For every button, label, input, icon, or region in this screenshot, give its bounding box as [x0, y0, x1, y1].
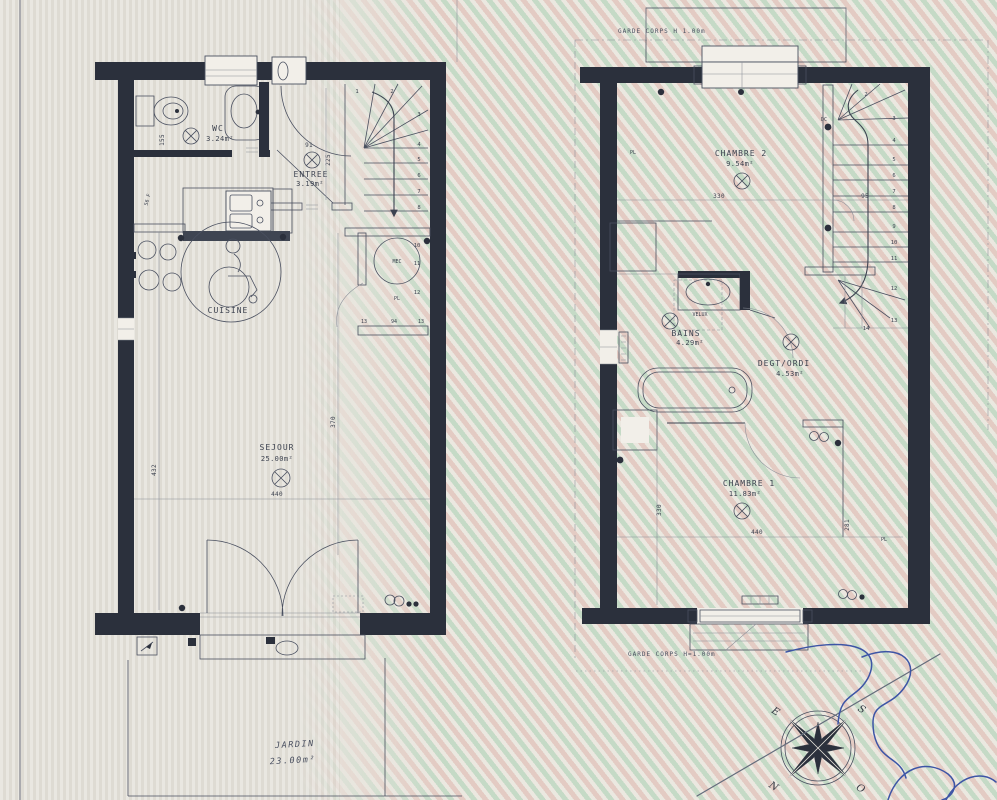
dim-330v: 330	[656, 504, 663, 516]
entree-area: 3.19m²	[296, 180, 324, 188]
dim-155: 155	[159, 134, 166, 146]
chambre1-door-arc	[745, 423, 800, 478]
wc-partition-right	[262, 150, 270, 157]
bathtub	[638, 368, 752, 412]
chambre2-room: PL CHAMBRE 2 9.54m² DC 330 95	[610, 117, 908, 271]
wall-bottom-right	[360, 613, 446, 635]
window-left-wall	[118, 318, 134, 340]
toilet	[136, 96, 188, 126]
chambre1-room: CHAMBRE 1 11.83m² 440 PL 330 281	[617, 420, 903, 605]
french-doors	[200, 540, 363, 617]
mec-wall-hatch	[358, 233, 366, 285]
garde-corps-top-label: GARDE CORPS H 1.00m	[618, 28, 706, 35]
wc-duct-wall	[259, 82, 269, 157]
step-num: 2	[864, 92, 867, 98]
sejour-area: 25.00m²	[261, 455, 293, 463]
step-num: 5	[417, 157, 420, 163]
socket-symbols-chambre1	[839, 590, 865, 600]
washbasin-bath	[678, 274, 740, 310]
step-num: 4	[892, 138, 896, 144]
entry-door-arc	[281, 86, 351, 156]
chambre2-area: 9.54m²	[726, 160, 754, 168]
dc-label: DC	[821, 117, 827, 123]
ceiling-light-wc	[183, 128, 199, 144]
ceiling-light-bains	[662, 313, 678, 329]
compass-rose: E S N O	[766, 703, 867, 795]
step-num: 1	[355, 89, 358, 95]
step-num: 13	[891, 318, 898, 324]
ground-floor-plan: WC 3.24m² 155 ENTREE 3.19m² 91 225	[95, 56, 446, 767]
chambre1-area: 11.83m²	[729, 490, 761, 498]
mec-zone: MEC PL 10 11 12 13 94 13	[337, 233, 428, 335]
entree-label: ENTREE	[294, 170, 329, 179]
wc-door-ticks	[246, 148, 258, 152]
window-top-1	[205, 56, 257, 85]
dim-13a: 13	[361, 319, 367, 325]
step-num: 9	[892, 224, 895, 230]
balcony-slab	[690, 624, 808, 650]
entree-door-ticks	[306, 205, 318, 209]
dim-281: 281	[844, 519, 851, 531]
wall-bottom-left-upper	[582, 608, 697, 624]
fixed-panel-dashed	[333, 596, 363, 612]
bains-label: BAINS	[671, 329, 700, 338]
step-num: 8	[417, 205, 420, 211]
dimension-lines-ground	[134, 88, 430, 610]
kitchen: CUISINE 56 F	[126, 188, 292, 322]
dim-330: 330	[713, 193, 725, 200]
blue-pen-curve-2	[862, 652, 911, 778]
step-num: 12	[414, 290, 421, 296]
step-num: 11	[891, 256, 898, 262]
wall-left-upper	[118, 62, 134, 318]
wall-top	[95, 62, 446, 80]
pl-left-label: PL	[630, 150, 636, 156]
dim-432: 432	[151, 464, 158, 476]
dim-440-upper: 440	[751, 529, 763, 536]
step-num: 8	[892, 205, 895, 211]
step-num: 10	[414, 243, 421, 249]
compass-s: S	[856, 703, 868, 716]
dim-440-ground: 440	[271, 491, 283, 498]
dim-370: 370	[330, 416, 337, 428]
wall-bottom-right-upper	[803, 608, 930, 624]
dressing-hatch	[613, 410, 657, 450]
pl-label-ground: PL	[394, 296, 400, 302]
step-num: 3	[892, 116, 895, 122]
floorplan-drawing: WC 3.24m² 155 ENTREE 3.19m² 91 225	[0, 0, 997, 800]
terrace-slab	[200, 635, 365, 659]
appliance-circles	[126, 241, 181, 291]
wall-right-upper-plan	[908, 67, 930, 624]
velux-label: VELUX	[692, 312, 707, 318]
socket-symbols-upper	[810, 432, 829, 442]
dim-13b: 13	[418, 319, 424, 325]
step-num: 6	[417, 173, 420, 179]
sejour-label: SEJOUR	[260, 443, 295, 452]
ceiling-light-chambre2	[734, 173, 750, 189]
degt-label: DEGT/ORDI	[758, 359, 810, 368]
socket-symbols-sejour	[385, 595, 419, 607]
dim-94: 94	[391, 319, 397, 325]
pl-door-arc	[337, 283, 363, 327]
pl-right-label: PL	[881, 537, 887, 543]
chambre1-label: CHAMBRE 1	[723, 479, 775, 488]
dim-91: 91	[305, 142, 313, 149]
pl-wall-hatch	[358, 326, 428, 335]
wall-right	[430, 62, 446, 635]
sejour-room: SEJOUR 25.00m² 440 432 370	[134, 88, 430, 610]
wc-area: 3.24m²	[206, 135, 234, 143]
compass-o: O	[854, 782, 867, 796]
step-num: 2	[390, 89, 393, 95]
compass-e: E	[768, 705, 781, 719]
window-top-2	[272, 57, 306, 84]
entree-hall: ENTREE 3.19m² 91 225	[269, 86, 352, 210]
kitchen-wall	[134, 224, 185, 232]
garde-corps-bottom-label: GARDE CORPS H=1.00m	[628, 651, 716, 658]
stair-top-arc	[833, 200, 854, 221]
upper-floor-plan: GARDE CORPS H 1.00m	[580, 8, 930, 658]
radiator	[619, 332, 628, 363]
bathroom-wall-top	[678, 271, 750, 278]
wc-label: WC	[212, 124, 224, 133]
stair-landing-hatch	[805, 267, 875, 275]
step-num: 3	[417, 112, 420, 118]
wall-bottom-left	[95, 613, 200, 635]
scanned-floorplan-page: WC 3.24m² 155 ENTREE 3.19m² 91 225	[0, 0, 997, 800]
window-left-upper	[600, 330, 628, 364]
stair-ground: 1 2 3 4 5 6 7 8	[345, 84, 430, 236]
kitchen-cabinet	[273, 189, 292, 233]
step-num: 6	[892, 173, 895, 179]
step-num: 4	[417, 142, 421, 148]
ceiling-light-entree	[304, 152, 320, 168]
mec-label: MEC	[392, 259, 401, 265]
stair-railing	[823, 85, 833, 272]
velux-dashed-outline	[674, 280, 722, 330]
wall-left-lower	[118, 340, 134, 615]
step-num: 7	[892, 189, 895, 195]
garden-boundary-lines	[128, 658, 462, 796]
wc-room: WC 3.24m² 155	[134, 82, 270, 157]
blue-pen-flourish-1	[888, 766, 954, 800]
compass-n: N	[766, 779, 781, 794]
entree-wall-hatch-right	[332, 203, 352, 210]
bathroom-duct	[740, 271, 750, 310]
ceiling-light-degt	[783, 334, 799, 350]
degt-area: 4.53m²	[776, 370, 804, 378]
doorbell-mark	[276, 641, 298, 655]
wc-partition-left	[134, 150, 232, 157]
balcony-window-top	[694, 46, 806, 88]
stair-walkline-arrow	[372, 92, 394, 216]
jardin-label: JARDIN	[274, 739, 315, 751]
bains-area: 4.29m²	[676, 339, 704, 347]
outdoor-tap-symbol	[137, 637, 157, 655]
step-num: 14	[863, 326, 870, 332]
step-num: 12	[891, 286, 898, 292]
step-num: 7	[417, 189, 420, 195]
step-num: 5	[892, 157, 895, 163]
ceiling-light-sejour	[272, 469, 290, 487]
annotation-56f: 56 F	[144, 193, 153, 206]
degt-ordi: DEGT/ORDI 4.53m²	[758, 334, 810, 378]
cuisine-label: CUISINE	[208, 306, 249, 315]
socket-dots-ground	[178, 234, 430, 646]
chambre2-label: CHAMBRE 2	[715, 149, 767, 158]
step-num: 11	[414, 261, 421, 267]
garden-area: JARDIN 23.00m²	[270, 739, 317, 767]
garde-corps-leader	[726, 624, 756, 650]
entree-wall-hatch-left	[269, 203, 302, 210]
balcony-window-bottom	[688, 596, 812, 650]
step-num: 10	[891, 240, 898, 246]
ceiling-light-chambre1	[734, 503, 750, 519]
jardin-area: 23.00m²	[270, 755, 317, 767]
chambre1-wall-right	[803, 420, 843, 427]
